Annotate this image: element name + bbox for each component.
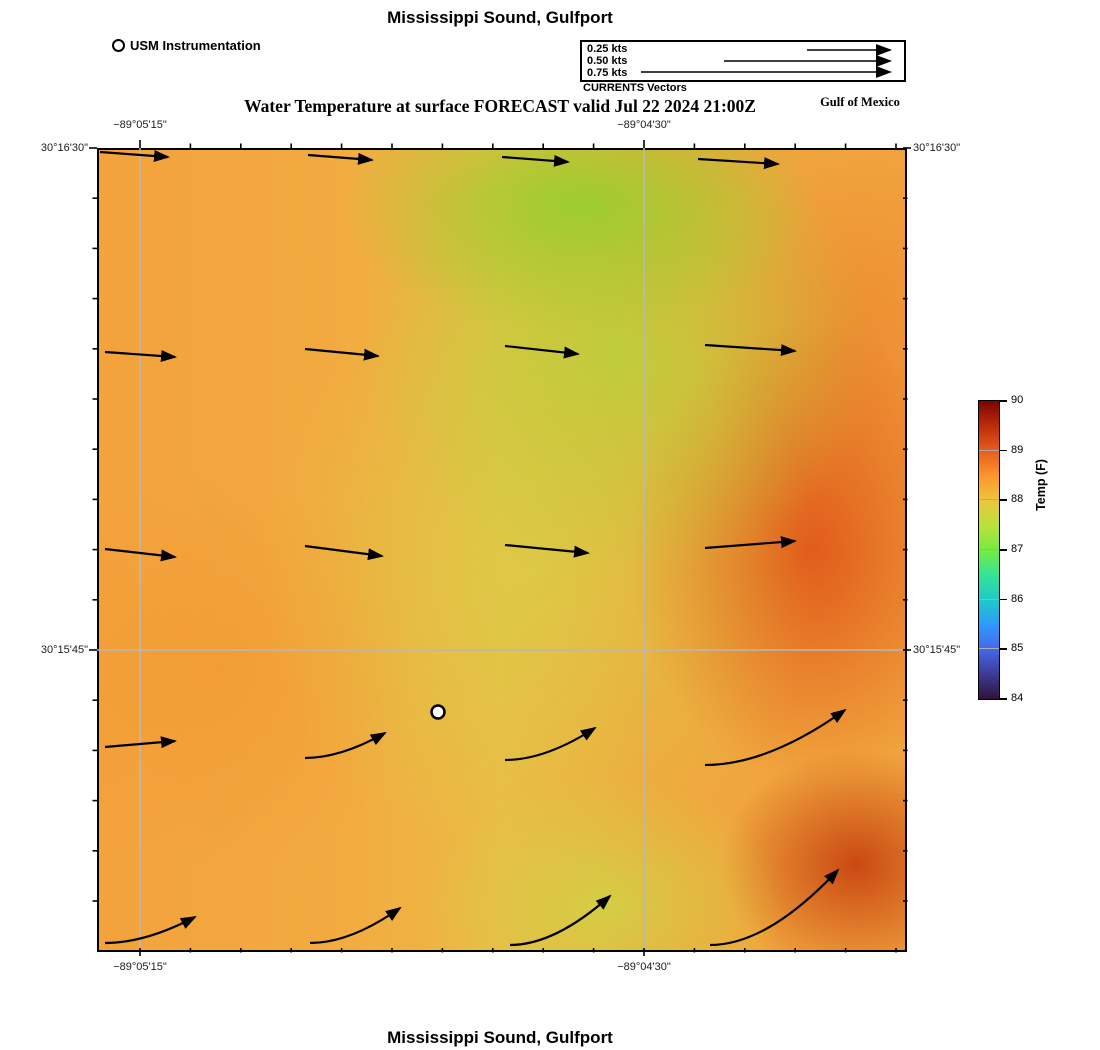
currents-caption: CURRENTS Vectors — [583, 82, 687, 94]
axis-label-lat-left-mid: 30°15'45" — [0, 644, 88, 656]
axis-label-lon-top-left: −89°05'15" — [60, 119, 220, 131]
colorbar-tick-label: 87 — [1011, 543, 1023, 555]
station-legend: USM Instrumentation — [112, 37, 261, 53]
currents-vector-legend: 0.25 kts 0.50 kts 0.75 kts — [580, 40, 906, 82]
station-legend-label: USM Instrumentation — [130, 38, 261, 53]
colorbar-tick-label: 89 — [1011, 444, 1023, 456]
colorbar-tick — [1000, 599, 1007, 601]
colorbar-gridline — [979, 648, 999, 649]
colorbar-tick — [1000, 400, 1007, 402]
colorbar-tick-label: 90 — [1011, 394, 1023, 406]
reference-arrows — [641, 50, 890, 72]
temperature-heatmap — [97, 148, 907, 952]
colorbar-tick — [1000, 450, 1007, 452]
colorbar-gridline — [979, 450, 999, 451]
colorbar-tick — [1000, 549, 1007, 551]
colorbar-tick — [1000, 499, 1007, 501]
page-title: Mississippi Sound, Gulfport — [0, 8, 1000, 28]
colorbar-tick-label: 88 — [1011, 493, 1023, 505]
colorbar-tick-label: 85 — [1011, 642, 1023, 654]
colorbar-label: Temp (F) — [1034, 435, 1048, 535]
forecast-plot-page: Mississippi Sound, Gulfport USM Instrume… — [0, 0, 1100, 1050]
station-marker-icon — [112, 39, 125, 52]
axis-label-lon-bottom-left: −89°05'15" — [60, 961, 220, 973]
region-label: Gulf of Mexico — [780, 95, 940, 110]
vector-legend-arrows — [582, 42, 904, 80]
axis-label-lat-right-mid: 30°15'45" — [913, 644, 960, 656]
axis-label-lat-left-top: 30°16'30" — [0, 142, 88, 154]
colorbar-gridline — [979, 599, 999, 600]
axis-label-lon-top-right: −89°04'30" — [564, 119, 724, 131]
colorbar-tick-label: 86 — [1011, 593, 1023, 605]
colorbar-tick — [1000, 648, 1007, 650]
axis-label-lon-bottom-right: −89°04'30" — [564, 961, 724, 973]
colorbar-tick-label: 84 — [1011, 692, 1023, 704]
colorbar-gridline — [979, 549, 999, 550]
colorbar-tick — [1000, 698, 1007, 700]
bottom-title: Mississippi Sound, Gulfport — [0, 1028, 1000, 1048]
colorbar-gridline — [979, 499, 999, 500]
axis-label-lat-right-top: 30°16'30" — [913, 142, 960, 154]
